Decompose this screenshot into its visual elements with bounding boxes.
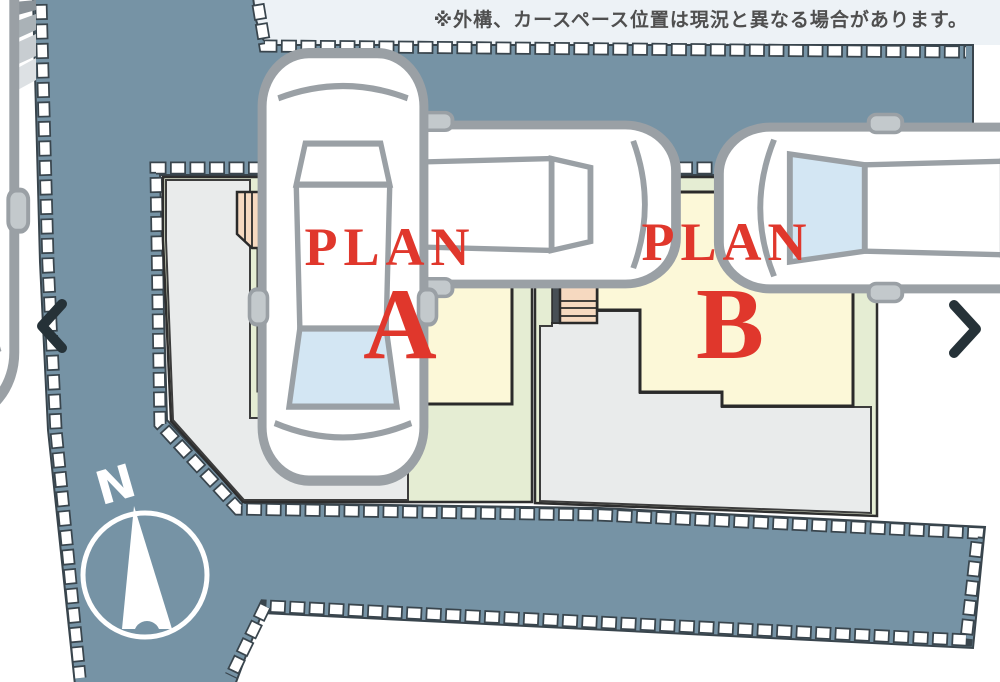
- plan-b-letter: B: [696, 268, 764, 381]
- plan-a-letter: A: [363, 268, 437, 381]
- chevron-right-icon[interactable]: [954, 305, 976, 353]
- plan-b-word: PLAN: [642, 212, 813, 272]
- site-plan-drawing: PLAN A PLAN B N: [0, 0, 1000, 682]
- disclaimer-text: ※外構、カースペース位置は現況と異なる場合があります。: [0, 5, 968, 32]
- car-icon: [0, 0, 28, 415]
- site-plan-viewer: PLAN A PLAN B N ※外構、カースペース位置は現況と異なる場合があり…: [0, 0, 1000, 682]
